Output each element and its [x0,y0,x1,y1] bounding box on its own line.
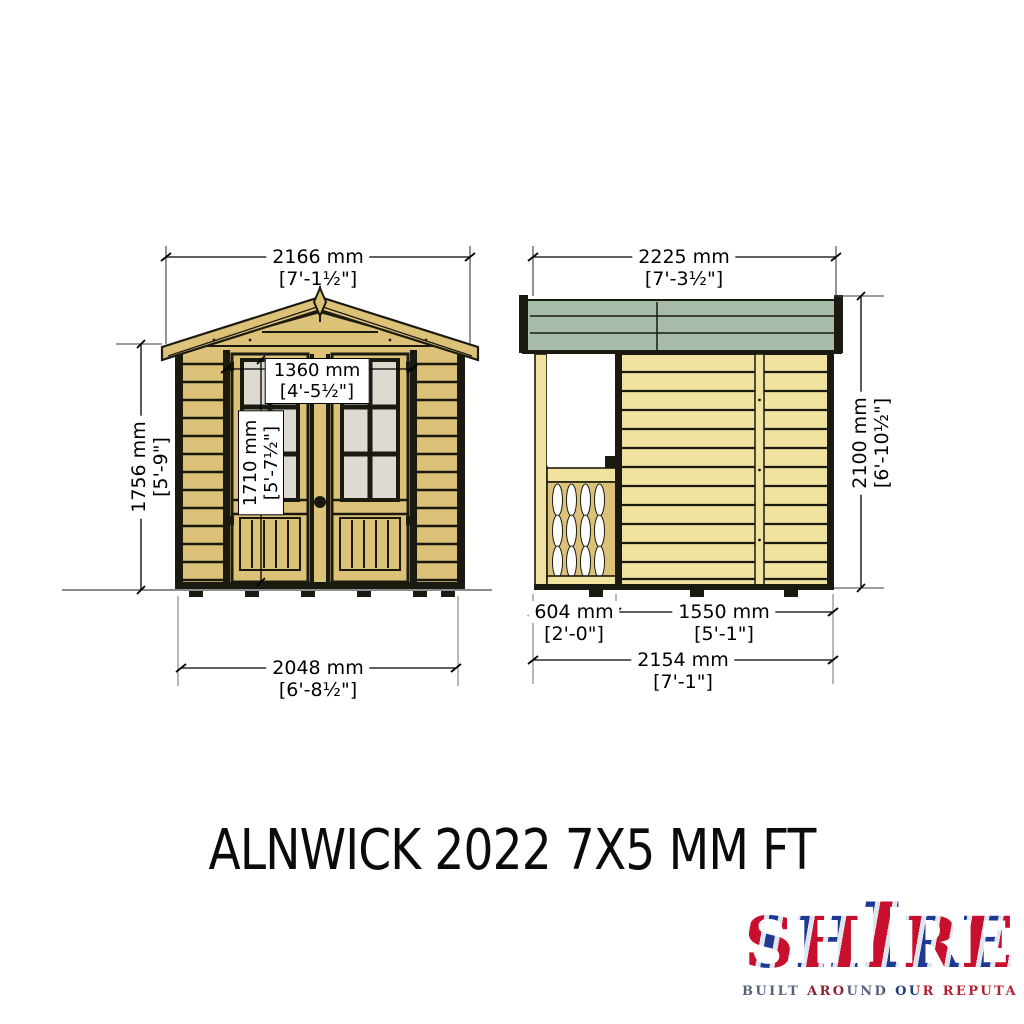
front-floor-bearers [189,590,455,597]
dim-side-veranda-depth: 604 mm [2'-0"] [528,601,619,645]
shire-logo-tagline: BUILT AROUND OUR REPUTATION [742,984,1016,999]
door-frame-post-left [223,350,230,586]
side-floor-bearers [589,590,798,597]
product-title: ALNWICK 2022 7X5 MM FT [209,818,816,883]
front-floor-base [176,582,464,590]
dim-front-base-width: 2048 mm [6'-8½"] [266,657,369,701]
door-frame-post-right [410,350,417,586]
side-window-opening [547,354,616,466]
dim-door-height: 1710 mm [5'-7½"] [238,411,284,516]
door-bottom-panel-left [240,518,300,570]
drawing-sheet: 2166 mm [7'-1½"] 1756 mm [5'-9"] 1360 mm… [0,0,1024,1024]
door-bottom-panel-right [340,518,400,570]
dim-side-wall-depth: 1550 mm [5'-1"] [672,601,775,645]
side-roof [519,295,843,354]
side-elevation [519,295,843,597]
front-corner-board-left [176,346,183,588]
door-knob [314,496,326,508]
side-balustrade [547,468,616,588]
side-wall [616,354,834,588]
window-sill-bracket [605,456,615,468]
dim-door-width: 1360 mm [4'-5½"] [265,358,370,404]
front-corner-board-right [457,346,464,588]
dim-side-height: 2100 mm [6'-10½"] [849,391,893,494]
dim-side-base-width: 2154 mm [7'-1"] [631,649,734,693]
dim-front-wall-height: 1756 mm [5'-9"] [128,415,172,518]
side-corner-post [535,354,547,588]
shire-logo: SHIRE BUILT AROUND OUR REPUTATION [742,892,1016,999]
side-floor-base [534,584,834,590]
dim-side-width-top: 2225 mm [7'-3½"] [632,246,735,290]
shire-logo-word: SHIRE [742,892,1016,982]
dim-front-width-top: 2166 mm [7'-1½"] [266,246,369,290]
